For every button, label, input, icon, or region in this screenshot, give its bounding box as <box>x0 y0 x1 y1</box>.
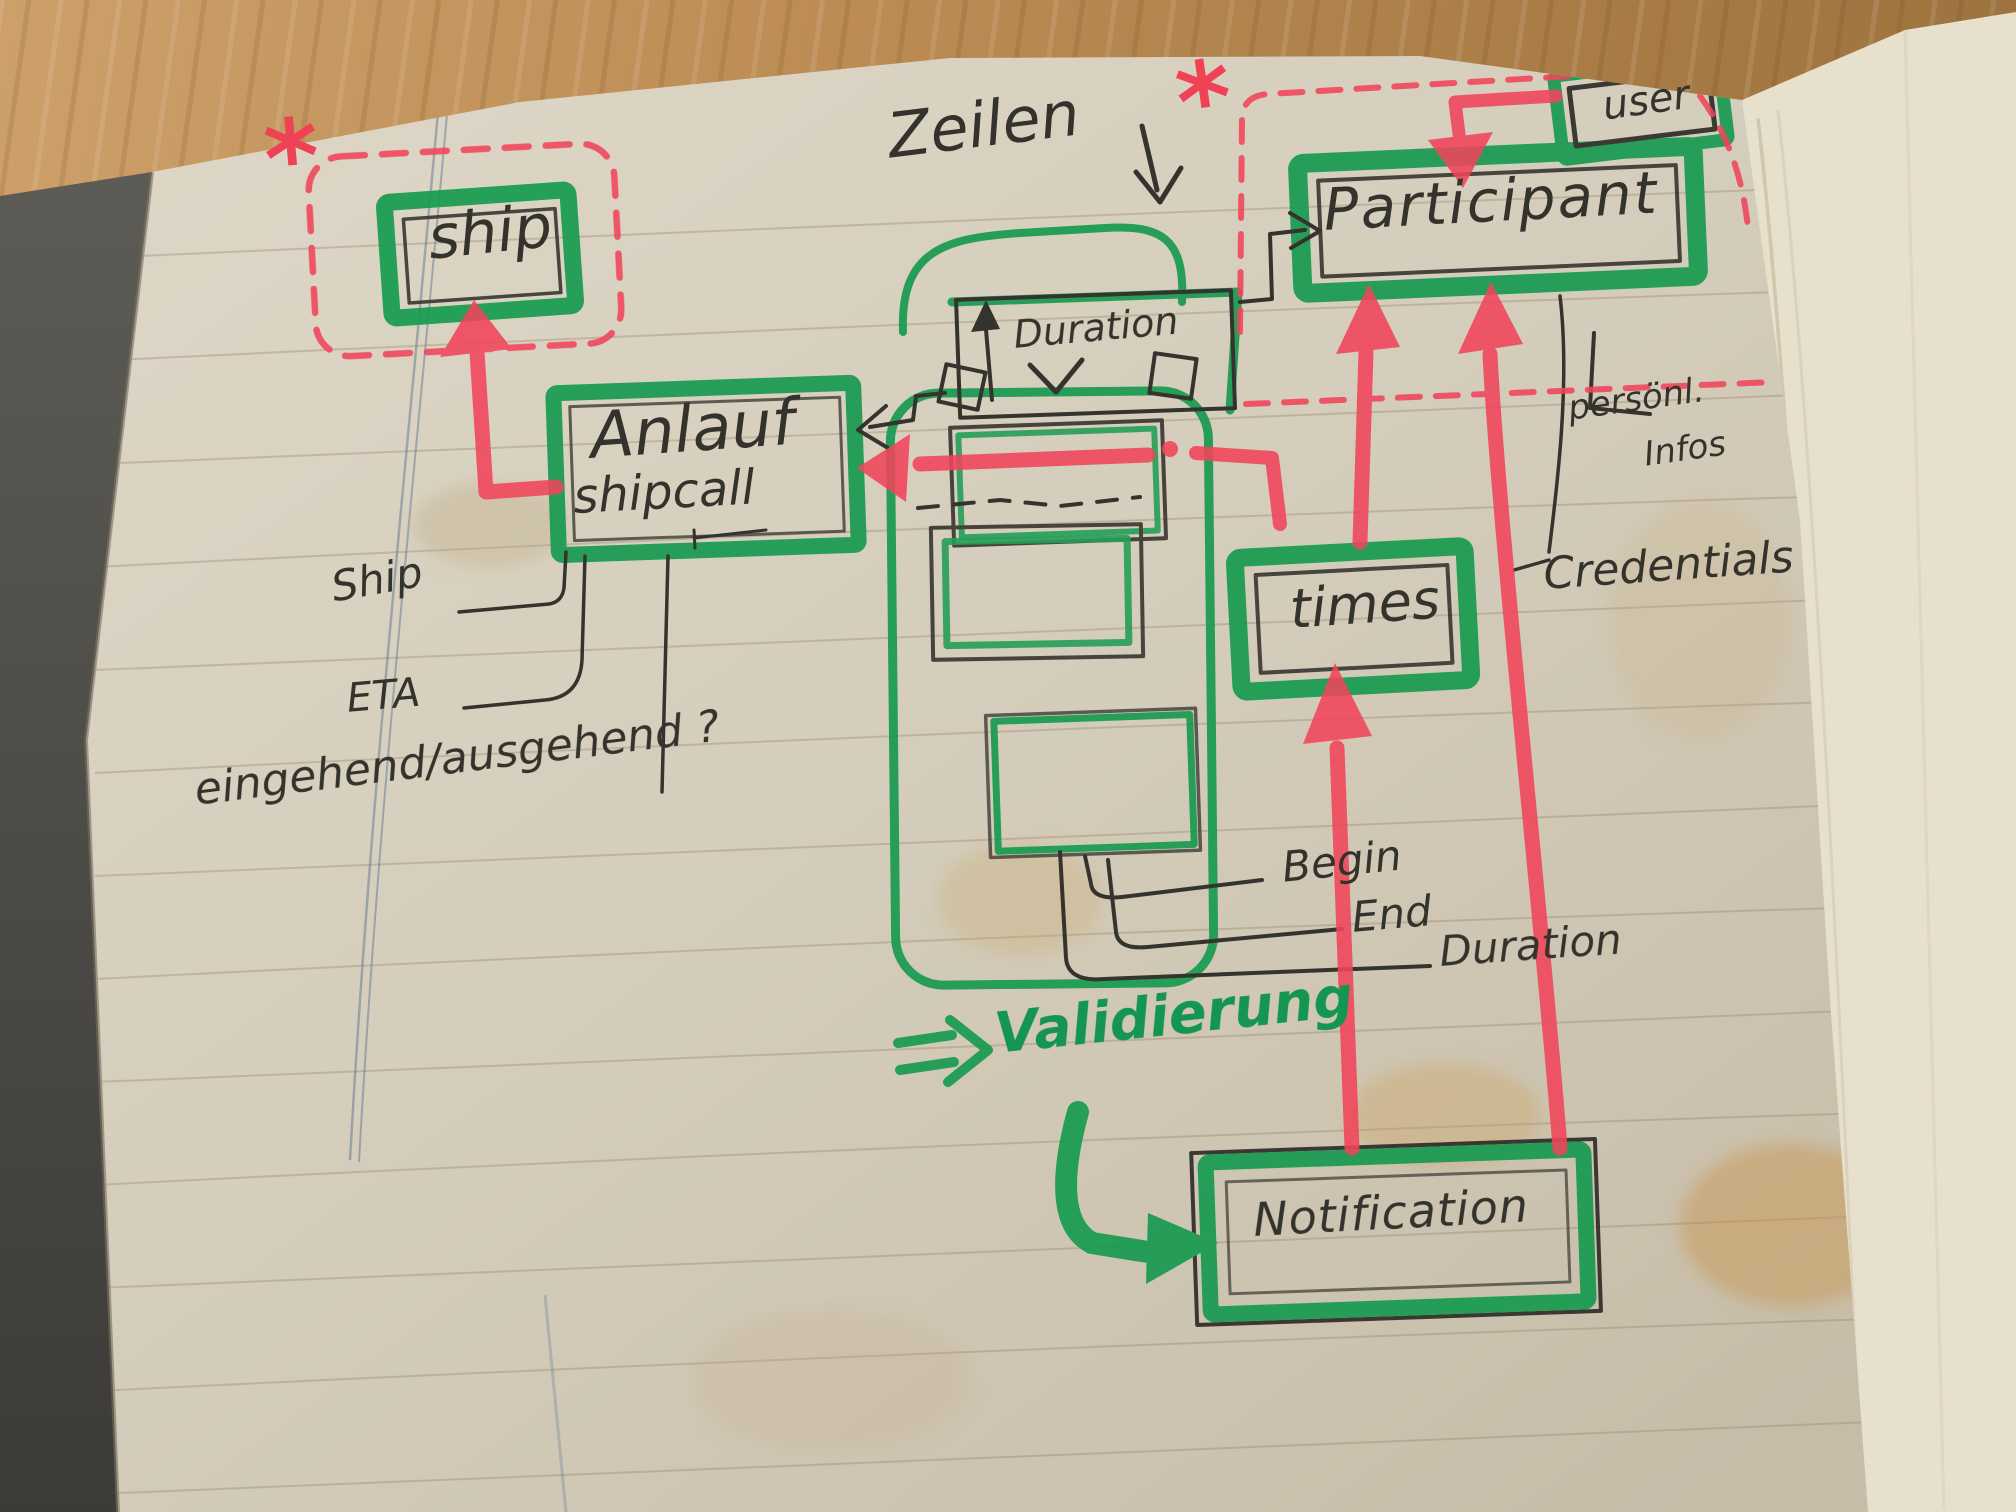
required-asterisk: * <box>260 101 324 216</box>
anlauf-box-label: Anlauf <box>588 390 797 471</box>
times-box-label: times <box>1288 572 1442 639</box>
eta-attr-label: ETA <box>345 672 422 720</box>
ship-box-label: ship <box>425 195 555 271</box>
shipcall-box-label: shipcall <box>572 462 756 522</box>
notebook-photo: * * Zeilen ship Participant user Duratio… <box>0 0 2016 1512</box>
end-attr-label: End <box>1350 889 1433 940</box>
